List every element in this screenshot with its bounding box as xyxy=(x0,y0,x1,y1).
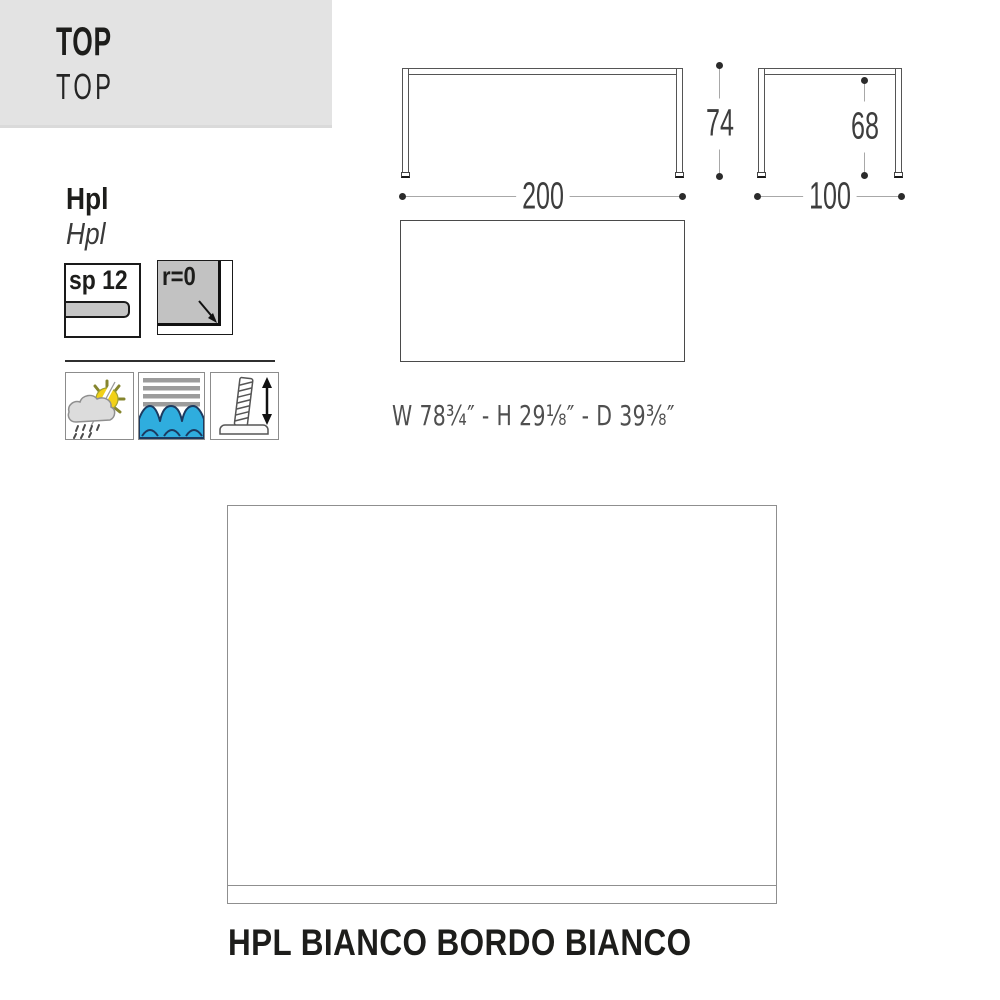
front-view-left-foot xyxy=(401,172,410,178)
front-view-tabletop xyxy=(402,68,683,75)
corner-radius-badge: r=0 xyxy=(157,260,233,335)
header-box: TOP TOP xyxy=(0,0,332,128)
page-title: TOP xyxy=(56,20,141,65)
front-view-left-leg xyxy=(402,68,409,178)
material-name-alt: Hpl xyxy=(66,216,113,252)
section-divider xyxy=(65,360,275,362)
finish-swatch xyxy=(227,505,777,904)
dim-dot xyxy=(861,77,868,84)
feature-box-water xyxy=(138,372,205,440)
dim-dot xyxy=(898,193,905,200)
front-view-right-foot xyxy=(675,172,684,178)
side-height-value: 68 xyxy=(850,102,881,153)
dim-dot xyxy=(399,193,406,200)
dim-dot xyxy=(754,193,761,200)
side-depth-value: 100 xyxy=(803,176,857,219)
side-view-right-foot xyxy=(894,172,903,178)
thickness-badge: sp 12 xyxy=(64,263,141,338)
side-view-left-leg xyxy=(758,68,765,178)
sun-rain-weatherproof-icon xyxy=(66,373,133,439)
finish-caption: HPL BIANCO BORDO BIANCO xyxy=(228,922,691,964)
side-view-tabletop xyxy=(758,68,902,75)
material-name: Hpl xyxy=(66,181,116,217)
side-view-left-foot xyxy=(757,172,766,178)
front-view-right-leg xyxy=(676,68,683,178)
top-view-rectangle xyxy=(400,220,685,362)
spec-sheet-page: TOP TOP Hpl Hpl sp 12 r=0 xyxy=(0,0,1000,1000)
front-height-value: 74 xyxy=(705,99,736,150)
feature-box-adjustable-feet xyxy=(210,372,279,440)
panel-thickness-icon xyxy=(66,301,130,318)
adjustable-foot-icon xyxy=(211,373,278,439)
side-view-right-leg xyxy=(895,68,902,178)
dim-dot xyxy=(861,172,868,179)
front-width-value: 200 xyxy=(516,176,570,219)
water-waves-icon xyxy=(139,373,204,439)
corner-arrow-icon xyxy=(158,261,232,334)
feature-box-weatherproof xyxy=(65,372,134,440)
page-subtitle: TOP xyxy=(56,66,144,108)
dim-dot xyxy=(679,193,686,200)
thickness-label: sp 12 xyxy=(69,265,138,296)
dim-dot xyxy=(716,62,723,69)
imperial-dimensions: W 78³⁄₄″ - H 29¹⁄₈″ - D 39³⁄₈″ xyxy=(392,399,675,432)
dim-dot xyxy=(716,173,723,180)
swatch-edge-line xyxy=(228,885,776,886)
